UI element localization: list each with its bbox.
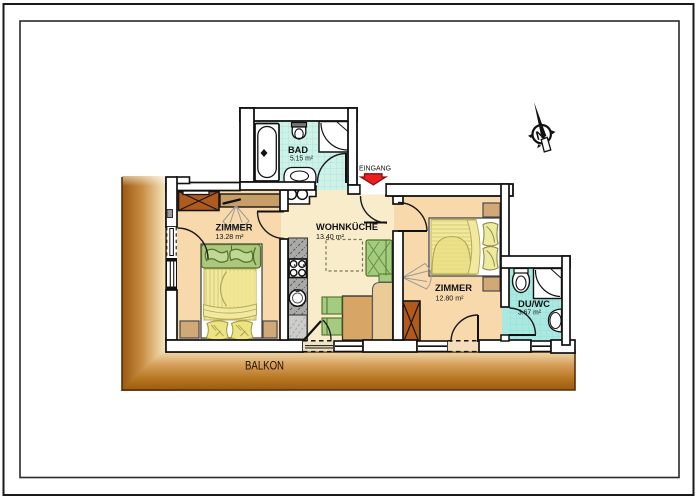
svg-text:13.40 m²: 13.40 m² bbox=[316, 234, 345, 241]
svg-text:EINGANG: EINGANG bbox=[359, 164, 391, 173]
svg-text:ZIMMER: ZIMMER bbox=[435, 283, 473, 293]
svg-text:3.67 m²: 3.67 m² bbox=[518, 310, 542, 317]
svg-text:DU/WC: DU/WC bbox=[518, 299, 551, 309]
svg-text:WOHNKÜCHE: WOHNKÜCHE bbox=[316, 222, 378, 232]
svg-text:BALKON: BALKON bbox=[245, 359, 284, 373]
svg-text:BAD: BAD bbox=[288, 145, 308, 156]
svg-text:13.28 m²: 13.28 m² bbox=[216, 234, 245, 241]
svg-text:12.80 m²: 12.80 m² bbox=[436, 296, 465, 303]
svg-text:ZIMMER: ZIMMER bbox=[216, 223, 254, 233]
svg-text:5.15 m²: 5.15 m² bbox=[290, 156, 314, 163]
